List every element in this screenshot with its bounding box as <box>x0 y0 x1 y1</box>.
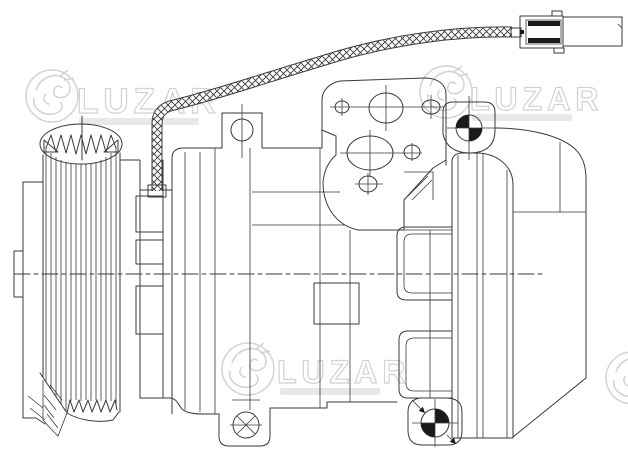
body-bottom-left-curve <box>170 398 219 414</box>
connector-plug <box>520 16 563 48</box>
belt-pulley <box>14 116 122 436</box>
rear-step-lines <box>513 142 586 212</box>
compressor-drawing: LUZAR LUZAR LUZAR <box>0 0 628 462</box>
cylinder-head <box>322 78 446 230</box>
connector-pin-dot <box>520 30 524 34</box>
port-crosshairs <box>330 85 444 195</box>
body-bottom-right-edge <box>270 402 397 408</box>
luzar-watermark-right-partial <box>606 352 628 404</box>
datum-target-bottom <box>408 398 462 447</box>
luzar-logo-icon <box>222 343 274 395</box>
watermark-brand-text: LUZAR <box>277 354 410 390</box>
rear-silhouette <box>495 128 586 437</box>
pulley-groove-zigzag-bottom <box>67 400 117 413</box>
luzar-logo-icon <box>26 70 78 122</box>
technical-drawing-page: LUZAR LUZAR LUZAR <box>0 0 628 462</box>
bottom-mounting-lug <box>219 400 270 446</box>
head-corner-detail <box>404 172 433 200</box>
connector-contact-bar <box>528 38 560 43</box>
connector-receptacle <box>563 17 622 46</box>
watermark-tagline-strip <box>79 118 199 125</box>
pulley-top-ellipse <box>40 124 122 164</box>
port-boss <box>314 283 359 324</box>
pulley-bottom-edge <box>67 412 119 421</box>
clutch-assembly <box>120 160 219 414</box>
watermark-tagline-strip <box>472 114 572 121</box>
luzar-logo-icon <box>606 352 628 404</box>
rear-housing <box>452 128 586 438</box>
top-tab <box>222 113 322 148</box>
watermark-tagline-strip <box>280 388 380 395</box>
watermark-brand-text: LUZAR <box>470 81 603 117</box>
luzar-watermark-top-right: LUZAR <box>420 66 603 121</box>
pulley-hub-flange <box>14 182 45 424</box>
rear-section-lines <box>458 153 507 438</box>
electrical-connector <box>511 11 622 53</box>
pulley-rib-lines <box>46 147 116 411</box>
connector-contact-bar <box>528 21 560 26</box>
